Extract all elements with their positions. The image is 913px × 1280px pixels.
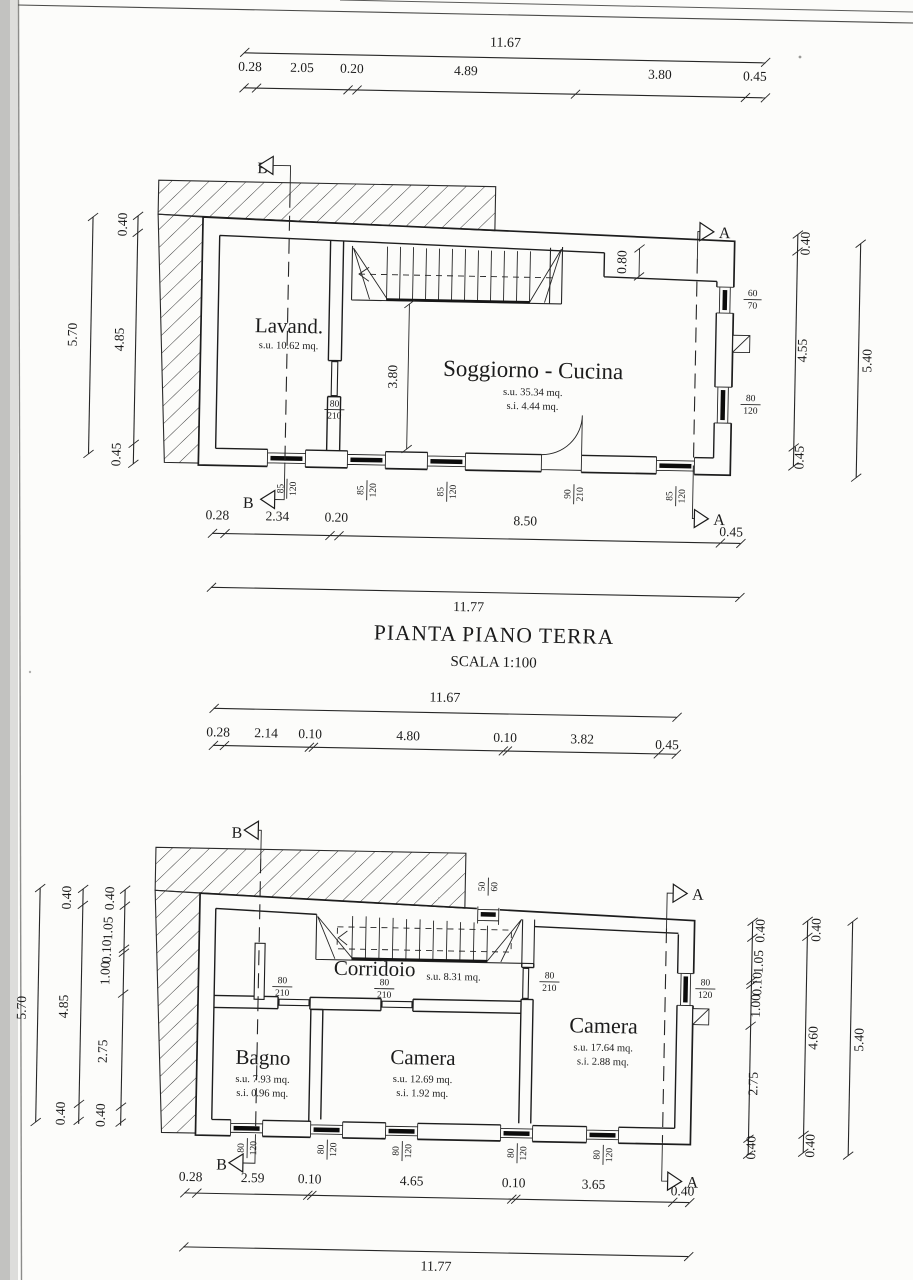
ff-door-label-0: 80 210 bbox=[272, 976, 292, 999]
door-num: 90 bbox=[563, 489, 573, 499]
ff-dim: 0.10 bbox=[749, 972, 764, 996]
gf-left-dimensions: 5.70 0.40 4.85 0.45 bbox=[62, 210, 143, 467]
ff-window-top-5060 bbox=[477, 905, 500, 925]
ff-room-camera-1-area2: s.i. 1.92 mq. bbox=[396, 1088, 448, 1100]
gf-door-leaf bbox=[331, 362, 338, 396]
door-den: 210 bbox=[275, 989, 290, 999]
door-den: 210 bbox=[576, 487, 586, 502]
ff-top-dimensions: 11.67 0.28 2.14 0.10 4.80 0.10 3.82 0.45 bbox=[206, 686, 682, 759]
win-den: 120 bbox=[698, 991, 713, 1001]
ff-door-label-2: 80 210 bbox=[539, 971, 559, 994]
win-den: 120 bbox=[743, 406, 758, 416]
win-den: 120 bbox=[605, 1148, 615, 1163]
ff-window-526 bbox=[500, 1123, 532, 1144]
gf-dim: 0.20 bbox=[324, 509, 348, 524]
gf-dim: 0.40 bbox=[115, 212, 130, 236]
gf-stair-depth-dim: 3.80 bbox=[385, 365, 400, 389]
ff-room-bagno: Bagno bbox=[235, 1045, 290, 1070]
ff-door-leaf bbox=[279, 999, 309, 1006]
win-den: 120 bbox=[404, 1144, 414, 1159]
ff-dim-right-total: 5.40 bbox=[851, 1028, 866, 1052]
gf-dim-bottom-total: 11.77 bbox=[453, 600, 484, 616]
ff-dim: 0.10 bbox=[502, 1175, 526, 1190]
ff-dim: 0.40 bbox=[752, 919, 767, 943]
gf-room-lavanderia: Lavand. bbox=[255, 313, 324, 338]
win-den: 120 bbox=[449, 484, 459, 499]
gf-window-283 bbox=[267, 447, 305, 469]
ff-dim: 0.40 bbox=[59, 885, 74, 909]
ff-dim-left-total: 5.70 bbox=[14, 996, 29, 1020]
win-den: 70 bbox=[748, 302, 758, 312]
ff-dim: 0.10 bbox=[493, 730, 517, 745]
door-den: 210 bbox=[377, 991, 392, 1001]
gf-room-lavanderia-area: s.u. 10.62 mq. bbox=[259, 340, 319, 352]
ff-dim: 0.40 bbox=[808, 918, 823, 942]
gf-dim: 8.50 bbox=[513, 513, 537, 528]
ff-dim: 1.00 bbox=[748, 994, 763, 1018]
gf-dim: 3.80 bbox=[648, 67, 672, 82]
section-arrow-b bbox=[260, 490, 274, 508]
hatched-wall-left bbox=[153, 214, 203, 463]
gf-top-dimensions: 11.67 0.28 2.05 0.20 4.89 3.80 0.45 bbox=[238, 31, 771, 103]
section-marker-b: B bbox=[216, 1156, 227, 1173]
ff-dim: 1.05 bbox=[100, 916, 115, 940]
win-num: 80 bbox=[237, 1143, 247, 1153]
ff-dim: 0.10 bbox=[99, 939, 114, 963]
ff-room-camera-1: Camera bbox=[390, 1045, 456, 1070]
gf-stair-walk-line bbox=[359, 274, 553, 278]
door-size-num: 80 bbox=[330, 400, 340, 410]
win-num: 60 bbox=[748, 289, 758, 299]
ff-dim: 1.05 bbox=[751, 950, 766, 974]
gf-dim: 0.20 bbox=[340, 61, 364, 76]
gf-dim-left-total: 5.70 bbox=[65, 322, 80, 346]
ff-dim: 0.10 bbox=[298, 1171, 322, 1186]
ff-room-bagno-area2: s.i. 0.96 mq. bbox=[236, 1088, 288, 1100]
gf-opening-label-1: 85 120 bbox=[356, 480, 379, 500]
gf-window-right-6070 bbox=[715, 287, 735, 313]
ff-window-612 bbox=[586, 1125, 618, 1146]
ff-bottom-dimensions: 0.28 2.59 0.10 4.65 0.10 3.65 0.40 11.77 bbox=[177, 1169, 695, 1280]
win-num: 80 bbox=[317, 1144, 327, 1154]
ff-right-window-label: 80 120 bbox=[695, 978, 715, 1001]
section-marker-b: B bbox=[243, 495, 254, 512]
ff-opening-label-4: 80 120 bbox=[592, 1145, 615, 1165]
ff-dim: 3.65 bbox=[582, 1177, 606, 1192]
ff-dim: 0.10 bbox=[298, 726, 322, 741]
ff-left-dimensions: 5.70 0.40 4.85 0.40 0.40 1.05 0.10 1.00 … bbox=[12, 884, 131, 1128]
ff-room-camera-2: Camera bbox=[569, 1012, 638, 1038]
ff-dim: 4.60 bbox=[805, 1026, 820, 1050]
gf-dim: 0.45 bbox=[743, 68, 767, 83]
ff-dim: 0.40 bbox=[743, 1136, 758, 1160]
gf-dim: 0.28 bbox=[205, 507, 229, 522]
win-num: 85 bbox=[436, 487, 446, 497]
gf-stairs bbox=[352, 243, 563, 304]
ff-dim: 0.40 bbox=[102, 886, 117, 910]
ff-dim: 0.28 bbox=[206, 724, 230, 739]
ff-dim: 2.75 bbox=[95, 1039, 110, 1063]
section-arrow-a bbox=[700, 223, 714, 241]
ff-stair-walk-line bbox=[337, 927, 511, 952]
ff-dim: 4.65 bbox=[400, 1173, 424, 1188]
ff-room-camera-1-area: s.u. 12.69 mq. bbox=[393, 1074, 453, 1086]
gf-window-443 bbox=[427, 450, 465, 472]
gf-dim: 0.45 bbox=[719, 524, 743, 539]
win-den: 120 bbox=[249, 1141, 259, 1156]
ff-dim: 4.85 bbox=[56, 994, 71, 1018]
gf-dim: 0.28 bbox=[238, 59, 262, 74]
ff-opening-label-3: 80 120 bbox=[506, 1143, 529, 1163]
gf-window-363 bbox=[347, 449, 385, 471]
section-arrow-a bbox=[673, 884, 687, 902]
ff-dim-top-total: 11.67 bbox=[429, 691, 460, 707]
door-den: 210 bbox=[542, 984, 557, 994]
ff-window-411 bbox=[385, 1121, 417, 1142]
ff-dim: 0.40 bbox=[53, 1101, 68, 1125]
ff-dim: 0.40 bbox=[671, 1183, 695, 1198]
win-num: 50 bbox=[478, 881, 488, 891]
ff-window-336 bbox=[310, 1119, 342, 1140]
ff-room-camera-2-area: s.u. 17.64 mq. bbox=[573, 1042, 633, 1054]
win-den: 120 bbox=[329, 1142, 339, 1157]
gf-opening-label-3: 90 210 bbox=[563, 484, 586, 504]
win-num: 85 bbox=[665, 491, 675, 501]
ff-dim: 0.40 bbox=[802, 1134, 817, 1158]
gf-dim: 0.40 bbox=[797, 231, 812, 255]
plan-scale: SCALA 1:100 bbox=[450, 654, 537, 672]
ff-dim-bottom-total: 11.77 bbox=[420, 1259, 451, 1275]
gf-section-line-a: A A bbox=[692, 223, 731, 530]
section-marker-a: A bbox=[692, 887, 704, 904]
gf-bottom-dimensions: 0.28 2.34 0.20 8.50 0.45 11.77 bbox=[204, 507, 746, 620]
gf-window-672 bbox=[656, 455, 694, 477]
gf-opening-label-2: 85 120 bbox=[436, 482, 459, 502]
ff-opening-label-1: 80 120 bbox=[317, 1139, 340, 1159]
section-arrow-b bbox=[244, 821, 258, 839]
gf-window-right-80120 bbox=[713, 387, 734, 423]
door-size-den: 210 bbox=[327, 411, 342, 421]
hatched-wall-left bbox=[150, 890, 200, 1133]
gf-right-label-1: 80 120 bbox=[740, 394, 760, 417]
gf-dim: 4.89 bbox=[454, 63, 478, 78]
win-num: 80 bbox=[507, 1148, 517, 1158]
win-num: 80 bbox=[701, 978, 711, 988]
ff-bagno-fixture bbox=[254, 943, 265, 999]
win-num: 80 bbox=[593, 1150, 603, 1160]
win-num: 80 bbox=[392, 1146, 402, 1156]
door-num: 80 bbox=[545, 971, 555, 981]
gf-opening-label-0: 85 120 bbox=[276, 479, 299, 499]
ff-door-leaf bbox=[523, 968, 529, 998]
win-den: 120 bbox=[289, 481, 299, 496]
ff-dim: 4.80 bbox=[396, 728, 420, 743]
ff-dim: 1.00 bbox=[97, 961, 112, 985]
ff-door-leaf bbox=[382, 1001, 412, 1008]
scanned-floor-plan-page: 11.67 0.28 2.05 0.20 4.89 3.80 0.45 5.70… bbox=[0, 0, 913, 1280]
gf-right-label-0: 60 70 bbox=[743, 289, 761, 312]
ff-door-label-1: 80 210 bbox=[374, 978, 394, 1001]
gf-dim: 0.45 bbox=[791, 445, 806, 469]
ff-window-256 bbox=[230, 1118, 262, 1139]
gf-dim-top-total: 11.67 bbox=[490, 36, 521, 52]
ground-floor-plan: 11.67 0.28 2.05 0.20 4.89 3.80 0.45 5.70… bbox=[58, 27, 880, 677]
gf-room-soggiorno-area2: s.i. 4.44 mq. bbox=[506, 401, 558, 413]
ff-right-dimensions: 0.40 1.05 0.10 1.00 2.75 0.40 0.40 4.60 … bbox=[743, 916, 869, 1162]
ff-flue bbox=[693, 1009, 709, 1025]
gf-dim: 0.45 bbox=[108, 442, 123, 466]
win-num: 85 bbox=[356, 485, 366, 495]
win-num: 80 bbox=[746, 394, 756, 404]
ff-dim: 2.14 bbox=[254, 725, 278, 740]
ff-room-camera-2-area2: s.i. 2.88 mq. bbox=[577, 1056, 629, 1068]
plan-title: PIANTA PIANO TERRA bbox=[374, 620, 615, 649]
ff-dim: 2.75 bbox=[745, 1072, 760, 1096]
ff-room-bagno-area: s.u. 7.93 mq. bbox=[235, 1074, 289, 1086]
ff-dim: 3.82 bbox=[570, 731, 594, 746]
gf-recess-dim: 0.80 bbox=[614, 250, 629, 274]
win-den: 60 bbox=[490, 882, 500, 892]
gf-room-soggiorno: Soggiorno - Cucina bbox=[443, 356, 624, 384]
ff-window-right-80120 bbox=[676, 973, 697, 1005]
ff-dim: 0.45 bbox=[655, 737, 679, 752]
win-num: 85 bbox=[276, 484, 286, 494]
gf-dim: 4.85 bbox=[111, 327, 126, 351]
gf-room-soggiorno-area: s.u. 35.34 mq. bbox=[503, 387, 563, 399]
ff-dim: 0.40 bbox=[93, 1103, 108, 1127]
ff-dim: 0.28 bbox=[179, 1169, 203, 1184]
gf-interior-dims: 3.80 0.80 bbox=[384, 240, 645, 458]
gf-dim: 2.34 bbox=[265, 508, 289, 523]
win-den: 120 bbox=[678, 489, 688, 504]
gf-dim: 4.55 bbox=[794, 338, 809, 362]
ff-section-line-a: A A bbox=[661, 884, 704, 1192]
gf-right-dimensions: 0.40 4.55 0.45 5.40 bbox=[788, 230, 877, 482]
section-marker-b: B bbox=[231, 825, 242, 842]
gf-opening-label-4: 85 120 bbox=[665, 486, 688, 506]
ff-room-corridoio-area: s.u. 8.31 mq. bbox=[426, 971, 480, 983]
first-floor-plan: 11.67 0.28 2.14 0.10 4.80 0.10 3.82 0.45 bbox=[9, 683, 873, 1280]
ff-room-corridoio: Corridoio bbox=[334, 956, 416, 982]
ff-top-window-label: 50 60 bbox=[478, 877, 501, 895]
ff-dim: 2.59 bbox=[241, 1170, 265, 1185]
ff-opening-label-2: 80 120 bbox=[391, 1141, 414, 1161]
gf-entry-door bbox=[541, 415, 582, 475]
floor-plan-drawing: 11.67 0.28 2.05 0.20 4.89 3.80 0.45 5.70… bbox=[0, 0, 913, 1280]
section-arrow-a bbox=[694, 510, 708, 528]
gf-dim-right-total: 5.40 bbox=[859, 349, 874, 373]
gf-flue bbox=[733, 335, 750, 352]
drawing-content: 11.67 0.28 2.05 0.20 4.89 3.80 0.45 5.70… bbox=[9, 27, 886, 1280]
gf-dim: 2.05 bbox=[290, 60, 314, 75]
win-den: 120 bbox=[519, 1146, 529, 1161]
win-den: 120 bbox=[369, 483, 379, 498]
section-marker-a: A bbox=[719, 225, 731, 242]
door-num: 80 bbox=[278, 976, 288, 986]
